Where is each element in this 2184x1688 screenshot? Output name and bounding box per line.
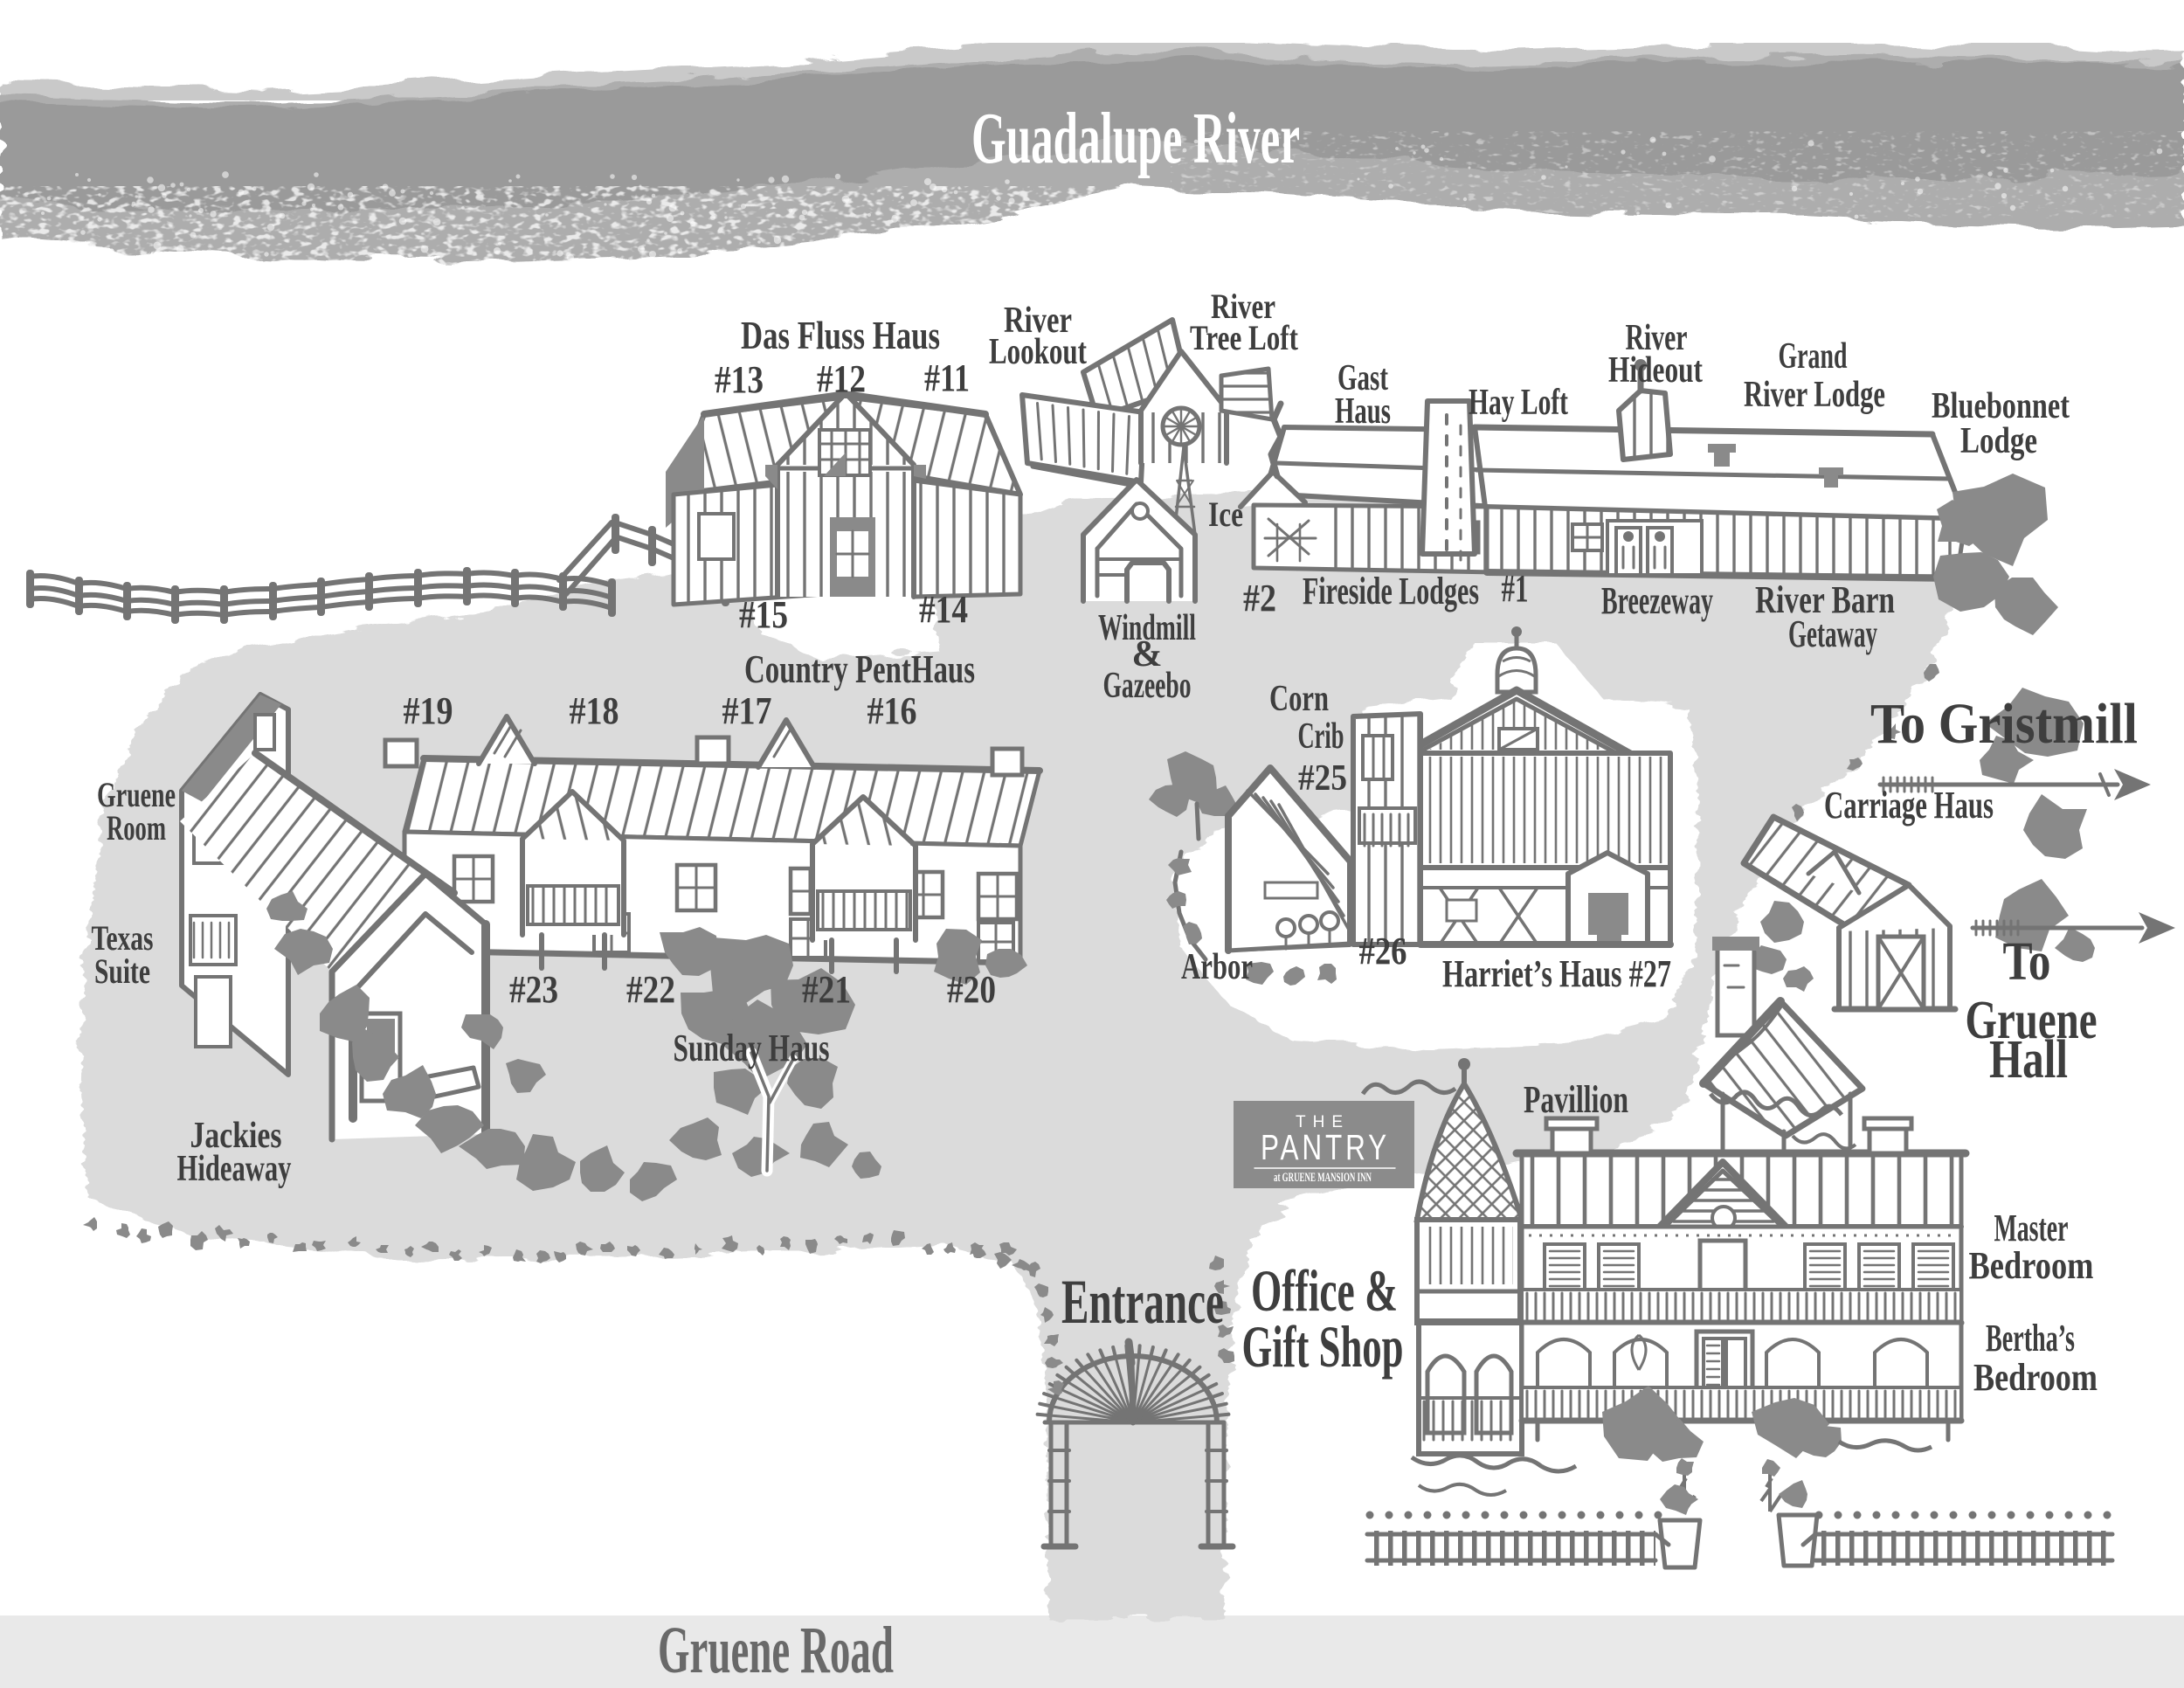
svg-text:Lodge: Lodge xyxy=(1960,421,2037,461)
svg-text:Hall: Hall xyxy=(1989,1030,2068,1090)
svg-text:at GRUENE MANSION INN: at GRUENE MANSION INN xyxy=(1274,1171,1372,1185)
svg-text:Sunday Haus: Sunday Haus xyxy=(674,1027,830,1069)
svg-text:Carriage Haus: Carriage Haus xyxy=(1824,784,1994,827)
svg-text:#19: #19 xyxy=(404,689,453,732)
svg-text:Bedroom: Bedroom xyxy=(1973,1356,2098,1399)
svg-text:Hideout: Hideout xyxy=(1608,350,1703,391)
svg-text:#13: #13 xyxy=(715,358,764,401)
svg-text:Ice: Ice xyxy=(1208,495,1243,534)
svg-text:Corn: Corn xyxy=(1269,679,1329,719)
svg-text:#17: #17 xyxy=(722,689,772,732)
svg-text:Suite: Suite xyxy=(94,951,150,991)
svg-text:Gruene Road: Gruene Road xyxy=(658,1614,894,1687)
svg-text:Hideaway: Hideaway xyxy=(177,1149,292,1189)
svg-text:Arbor: Arbor xyxy=(1181,947,1253,987)
svg-text:#20: #20 xyxy=(947,968,996,1011)
svg-text:#18: #18 xyxy=(570,689,619,732)
svg-text:Fireside Lodges: Fireside Lodges xyxy=(1303,570,1479,612)
svg-text:PANTRY: PANTRY xyxy=(1261,1127,1390,1167)
svg-text:#14: #14 xyxy=(919,588,968,631)
svg-text:Bertha’s: Bertha’s xyxy=(1986,1317,2075,1359)
svg-text:#11: #11 xyxy=(924,356,970,399)
svg-text:Gift Shop: Gift Shop xyxy=(1242,1313,1404,1380)
svg-text:#1: #1 xyxy=(1502,567,1529,610)
svg-text:Bedroom: Bedroom xyxy=(1969,1244,2094,1287)
svg-text:#2: #2 xyxy=(1243,577,1276,619)
svg-text:Crib: Crib xyxy=(1298,716,1344,757)
svg-text:#16: #16 xyxy=(867,689,917,732)
svg-text:#25: #25 xyxy=(1298,758,1347,799)
svg-text:#23: #23 xyxy=(509,968,558,1011)
svg-text:#21: #21 xyxy=(802,968,851,1011)
svg-text:#12: #12 xyxy=(817,357,866,400)
svg-text:Grand: Grand xyxy=(1779,336,1848,377)
svg-text:#22: #22 xyxy=(626,968,675,1011)
svg-text:Room: Room xyxy=(107,808,166,847)
svg-text:Pavillion: Pavillion xyxy=(1524,1078,1628,1121)
svg-text:Master: Master xyxy=(1994,1207,2069,1249)
svg-text:Harriet’s Haus #27: Harriet’s Haus #27 xyxy=(1442,952,1671,995)
svg-text:River Lodge: River Lodge xyxy=(1744,375,1885,415)
svg-text:#15: #15 xyxy=(739,593,788,636)
svg-text:Country PentHaus: Country PentHaus xyxy=(744,647,975,691)
svg-text:#26: #26 xyxy=(1359,930,1407,972)
svg-text:Entrance: Entrance xyxy=(1061,1267,1224,1337)
svg-text:Haus: Haus xyxy=(1335,391,1391,432)
svg-text:Hay Loft: Hay Loft xyxy=(1469,383,1568,423)
svg-text:Tree Loft: Tree Loft xyxy=(1190,318,1299,357)
svg-text:Gazeebo: Gazeebo xyxy=(1103,666,1192,706)
svg-text:Breezeway: Breezeway xyxy=(1601,579,1713,622)
svg-text:Getaway: Getaway xyxy=(1788,612,1877,655)
svg-text:To Gristmill: To Gristmill xyxy=(1870,692,2138,756)
svg-text:To: To xyxy=(2003,932,2051,992)
svg-text:Guadalupe River: Guadalupe River xyxy=(971,98,1300,179)
svg-text:Lookout: Lookout xyxy=(989,332,1087,372)
svg-text:Das Fluss Haus: Das Fluss Haus xyxy=(741,313,940,357)
